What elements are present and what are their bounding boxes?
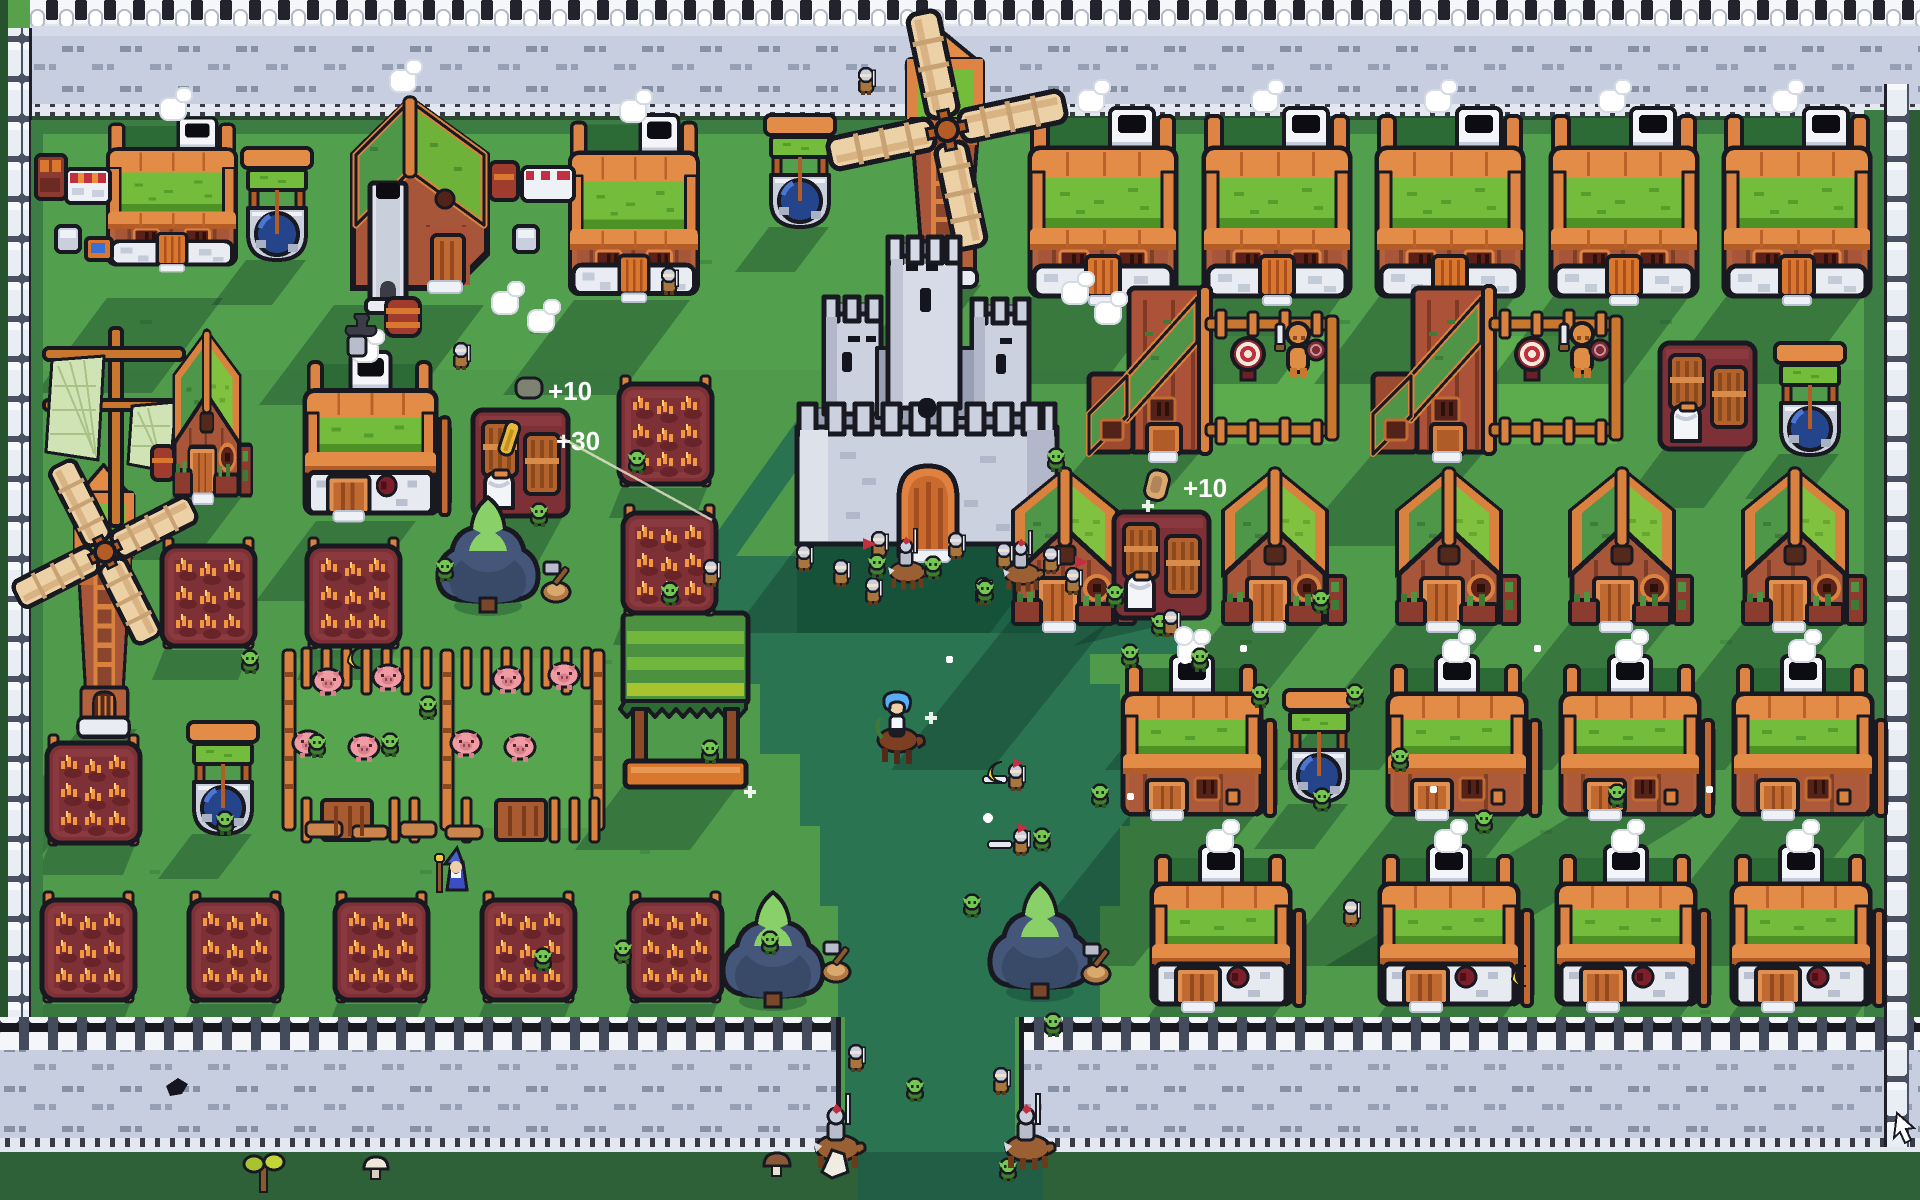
svg-text:+30: +30 — [556, 426, 600, 456]
svg-text:+10: +10 — [1183, 473, 1227, 503]
svg-text:+10: +10 — [548, 376, 592, 406]
